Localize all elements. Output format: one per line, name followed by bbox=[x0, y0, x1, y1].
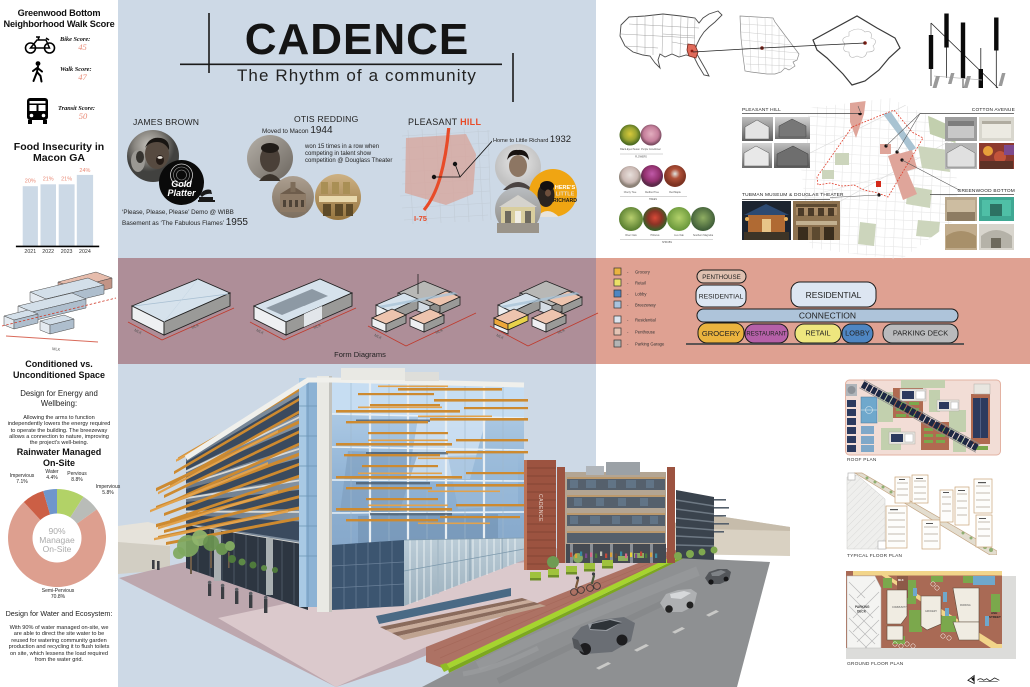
svg-text:21%: 21% bbox=[43, 177, 54, 183]
svg-text:Cherry Tree: Cherry Tree bbox=[624, 191, 637, 194]
svg-text:Hibiscus: Hibiscus bbox=[650, 234, 660, 237]
svg-text:Grocery: Grocery bbox=[635, 270, 651, 275]
svg-text:2024: 2024 bbox=[79, 249, 91, 255]
svg-text:-: - bbox=[627, 318, 629, 323]
svg-text:MLK: MLK bbox=[496, 333, 505, 340]
svg-text:On-Site: On-Site bbox=[43, 544, 72, 554]
svg-text:PARKING DECK: PARKING DECK bbox=[893, 329, 948, 338]
svg-text:Penthouse: Penthouse bbox=[635, 330, 656, 335]
svg-text:PENTHOUSE: PENTHOUSE bbox=[702, 274, 741, 281]
svg-text:Retail: Retail bbox=[635, 281, 646, 286]
svg-text:-: - bbox=[627, 292, 629, 297]
svg-text:TREES: TREES bbox=[649, 198, 657, 201]
svg-text:COMMUNITY: COMMUNITY bbox=[892, 606, 907, 609]
svg-text:FLOWERS: FLOWERS bbox=[635, 156, 647, 159]
svg-text:24%: 24% bbox=[79, 168, 90, 174]
svg-text:GROCERY: GROCERY bbox=[702, 329, 740, 338]
svg-text:Breezeway: Breezeway bbox=[635, 303, 657, 308]
svg-text:MLK: MLK bbox=[52, 346, 61, 352]
svg-text:GROCERY: GROCERY bbox=[925, 610, 937, 613]
svg-text:MLK: MLK bbox=[898, 578, 904, 582]
svg-text:-: - bbox=[627, 303, 629, 308]
svg-text:RESIDENTIAL: RESIDENTIAL bbox=[699, 294, 744, 301]
svg-text:Purple Coneflower: Purple Coneflower bbox=[641, 148, 661, 151]
svg-text:SHRUBS: SHRUBS bbox=[662, 241, 672, 244]
svg-text:River Oats: River Oats bbox=[625, 234, 637, 237]
svg-text:RESIDENTIAL: RESIDENTIAL bbox=[806, 290, 862, 300]
svg-text:21%: 21% bbox=[61, 177, 72, 183]
svg-text:Lobby: Lobby bbox=[635, 292, 647, 297]
svg-text:RESTAURANT: RESTAURANT bbox=[746, 332, 787, 338]
svg-text:I-75: I-75 bbox=[414, 214, 427, 223]
svg-text:PARKING: PARKING bbox=[855, 605, 870, 609]
svg-text:DECK: DECK bbox=[857, 610, 867, 614]
svg-text:-: - bbox=[627, 330, 629, 335]
svg-text:Black-Eyed Susan: Black-Eyed Susan bbox=[620, 148, 640, 151]
svg-text:HERE'S: HERE'S bbox=[555, 185, 576, 191]
svg-text:20%: 20% bbox=[25, 179, 36, 185]
svg-text:MLK: MLK bbox=[374, 333, 383, 340]
svg-text:2021: 2021 bbox=[24, 249, 36, 255]
svg-text:-: - bbox=[627, 342, 629, 347]
svg-text:CADENCE: CADENCE bbox=[537, 494, 543, 522]
svg-text:LOBBY: LOBBY bbox=[845, 329, 870, 338]
svg-text:PARKING: PARKING bbox=[960, 604, 971, 607]
svg-text:-: - bbox=[627, 270, 629, 275]
svg-text:2022: 2022 bbox=[42, 249, 54, 255]
svg-text:LITTLE: LITTLE bbox=[556, 192, 575, 198]
svg-text:RICHARD: RICHARD bbox=[553, 198, 577, 204]
svg-text:Redbud Tree: Redbud Tree bbox=[645, 191, 659, 194]
svg-text:CONNECTION: CONNECTION bbox=[799, 311, 856, 321]
svg-text:2023: 2023 bbox=[61, 249, 73, 255]
svg-text:Residential: Residential bbox=[635, 318, 656, 323]
svg-text:RETAIL: RETAIL bbox=[805, 329, 830, 338]
svg-text:Southern Magnolia: Southern Magnolia bbox=[693, 234, 714, 237]
svg-text:Platter: Platter bbox=[167, 188, 196, 198]
svg-text:Parking Garage: Parking Garage bbox=[635, 342, 665, 347]
svg-text:STREET: STREET bbox=[989, 615, 1001, 619]
svg-text:-: - bbox=[627, 281, 629, 286]
svg-text:Live Oak: Live Oak bbox=[674, 234, 684, 237]
svg-text:Red Maple: Red Maple bbox=[669, 191, 681, 194]
